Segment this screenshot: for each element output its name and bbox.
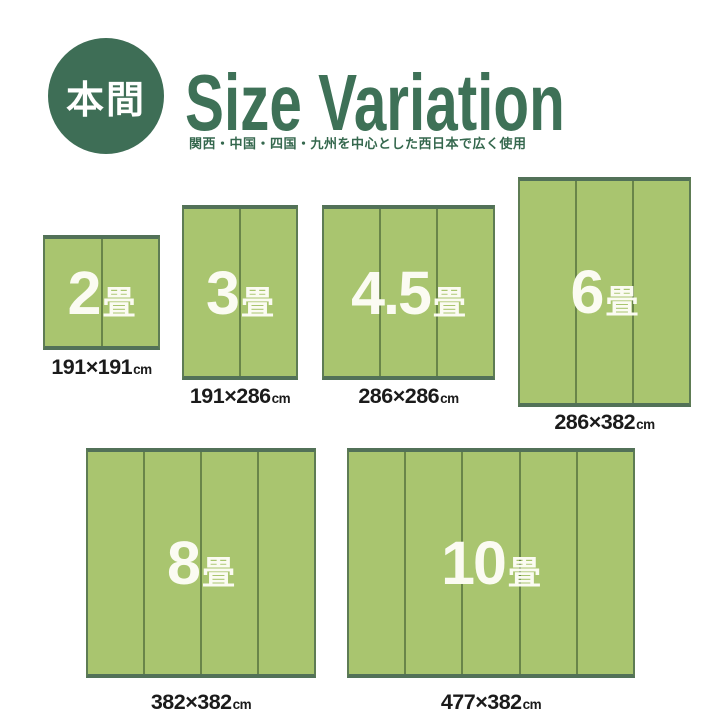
jo-label: 8畳 (88, 452, 314, 674)
dimensions-unit: cm (440, 391, 459, 406)
dimensions-value: 191×286 (190, 384, 271, 408)
dimensions-unit: cm (133, 362, 152, 377)
jo-label: 6畳 (520, 181, 689, 403)
dimensions-unit: cm (523, 697, 542, 712)
dimensions-label-4-5jo: 286×286cm (322, 384, 495, 411)
jo-label: 10畳 (349, 452, 633, 674)
tatami-type-badge: 本間 (48, 38, 164, 154)
jo-label: 2畳 (45, 239, 158, 346)
jo-unit: 畳 (508, 554, 541, 591)
mat-10jo: 10畳 (347, 448, 635, 678)
page-title: Size Variation (185, 63, 565, 143)
dimensions-label-6jo: 286×382cm (518, 410, 691, 437)
jo-number: 3 (206, 259, 238, 327)
dimensions-value: 382×382 (151, 690, 232, 714)
jo-label: 4.5畳 (324, 209, 493, 376)
dimensions-unit: cm (636, 417, 655, 432)
dimensions-value: 286×286 (358, 384, 439, 408)
dimensions-label-10jo: 477×382cm (347, 690, 635, 717)
jo-unit: 畳 (605, 283, 638, 320)
dimensions-value: 191×191 (51, 355, 132, 379)
page-subtitle: 関西・中国・四国・九州を中心とした西日本で広く使用 (189, 134, 527, 154)
mat-2jo: 2畳 (43, 235, 160, 350)
size-variation-infographic: 本間 Size Variation 関西・中国・四国・九州を中心とした西日本で広… (0, 0, 720, 720)
jo-unit: 畳 (241, 284, 274, 321)
jo-unit: 畳 (202, 554, 235, 591)
mat-4-5jo: 4.5畳 (322, 205, 495, 380)
mat-8jo: 8畳 (86, 448, 316, 678)
jo-unit: 畳 (102, 284, 135, 321)
dimensions-label-8jo: 382×382cm (86, 690, 316, 717)
badge-label: 本間 (66, 69, 146, 124)
jo-number: 8 (167, 529, 199, 597)
jo-unit: 畳 (433, 284, 466, 321)
dimensions-unit: cm (233, 697, 252, 712)
jo-number: 2 (68, 259, 100, 327)
dimensions-label-3jo: 191×286cm (182, 384, 298, 411)
dimensions-value: 286×382 (554, 410, 635, 434)
dimensions-value: 477×382 (441, 690, 522, 714)
jo-number: 6 (571, 258, 603, 326)
mat-3jo: 3畳 (182, 205, 298, 380)
dimensions-label-2jo: 191×191cm (43, 355, 160, 382)
jo-label: 3畳 (184, 209, 296, 376)
dimensions-unit: cm (272, 391, 291, 406)
jo-number: 4.5 (351, 259, 430, 327)
mat-6jo: 6畳 (518, 177, 691, 407)
jo-number: 10 (441, 529, 505, 597)
